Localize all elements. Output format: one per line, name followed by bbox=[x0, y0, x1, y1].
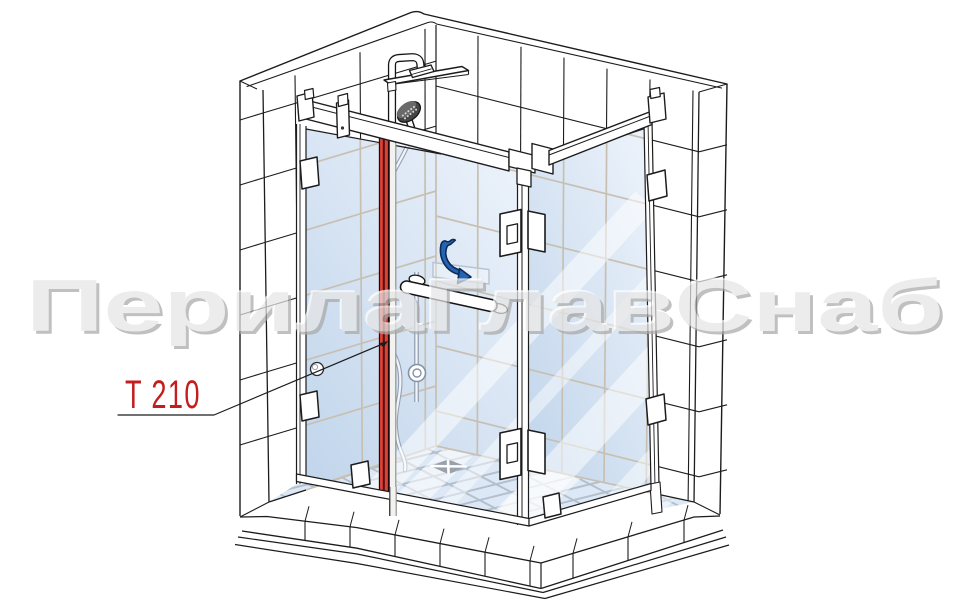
svg-text:ПерилаГлавСнаб: ПерилаГлавСнаб bbox=[26, 266, 944, 347]
svg-text:T 210: T 210 bbox=[125, 373, 201, 417]
